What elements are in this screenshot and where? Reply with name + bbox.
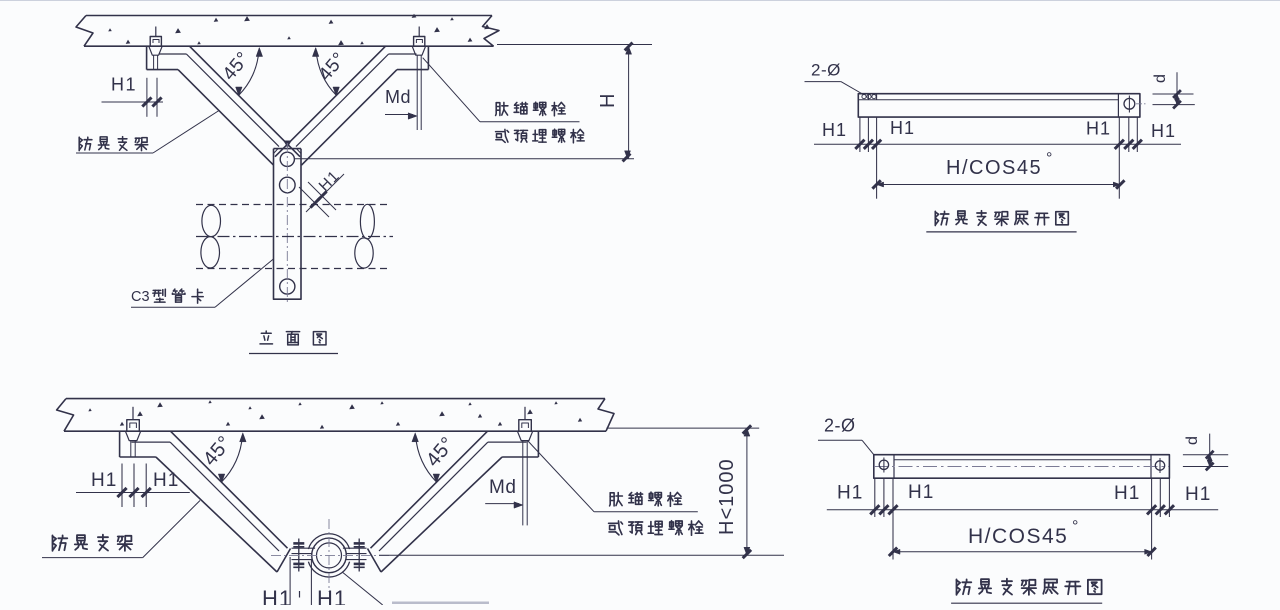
svg-text:H/COS45: H/COS45 (946, 157, 1042, 179)
svg-text:H1: H1 (153, 470, 179, 491)
svg-text:H1: H1 (1151, 121, 1176, 141)
svg-text:H1: H1 (908, 482, 934, 503)
svg-text:°: ° (1046, 150, 1052, 167)
svg-text:H1: H1 (317, 586, 347, 605)
svg-text:°: ° (1072, 518, 1078, 535)
svg-text:H<1000: H<1000 (716, 458, 738, 535)
svg-text:H1: H1 (1185, 484, 1211, 505)
svg-text:d: d (1184, 436, 1201, 445)
svg-text:Md: Md (489, 477, 516, 498)
svg-text:C3: C3 (131, 289, 150, 305)
svg-text:H1: H1 (1086, 119, 1111, 139)
svg-text:d: d (1152, 74, 1169, 83)
svg-text:H1: H1 (890, 118, 915, 138)
svg-text:2-Ø: 2-Ø (811, 61, 841, 80)
svg-text:H1: H1 (262, 586, 292, 605)
svg-text:H1: H1 (837, 483, 863, 504)
svg-text:H1: H1 (822, 120, 847, 140)
svg-text:Md: Md (385, 87, 411, 107)
svg-text:H1: H1 (91, 470, 117, 491)
svg-text:H1: H1 (111, 75, 137, 95)
svg-text:H: H (597, 94, 619, 108)
svg-text:H/COS45: H/COS45 (968, 525, 1068, 548)
svg-text:H1: H1 (1114, 483, 1140, 504)
svg-text:2-Ø: 2-Ø (824, 416, 856, 436)
